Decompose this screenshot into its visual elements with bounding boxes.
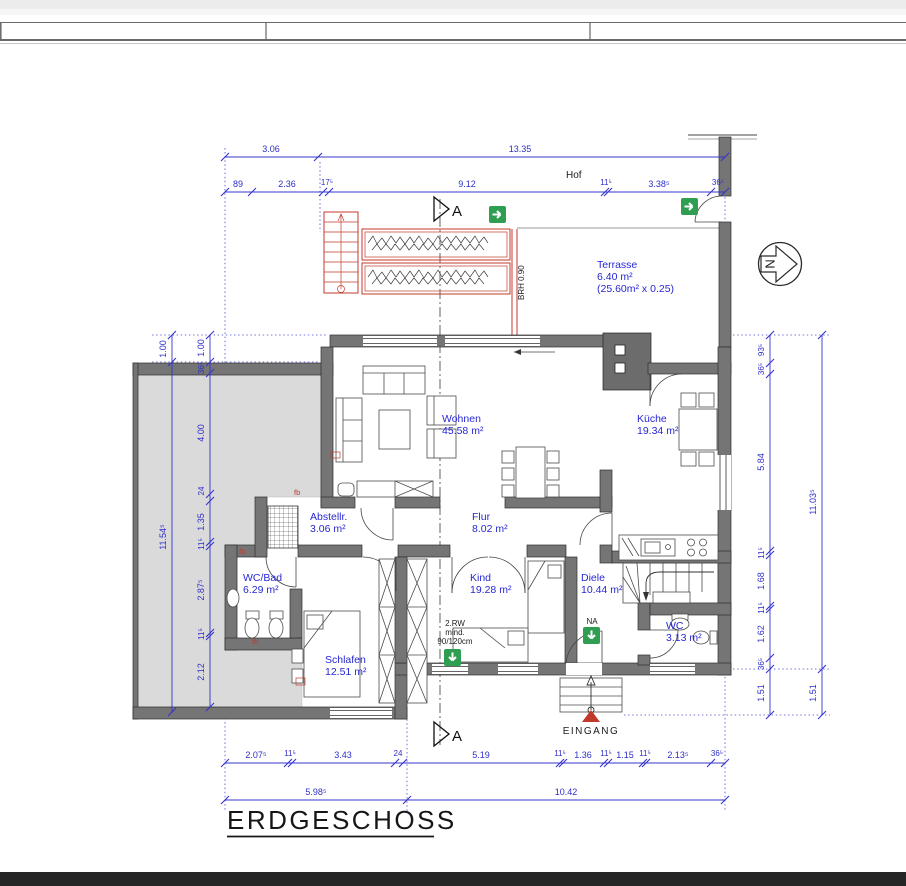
svg-text:ERDGESCHOSS: ERDGESCHOSS (227, 805, 457, 835)
svg-text:5.98⁵: 5.98⁵ (305, 787, 327, 797)
svg-text:13.35: 13.35 (509, 144, 532, 154)
room-area-wohnen: 45.58 m² (442, 425, 484, 437)
north-label: N (763, 259, 778, 268)
room-label-diele: Diele (581, 572, 605, 584)
svg-text:1.51: 1.51 (808, 684, 818, 702)
section-marker-bottom: A (452, 728, 462, 745)
scan-bottom-band (0, 872, 906, 886)
svg-text:36⁵: 36⁵ (197, 362, 206, 374)
svg-text:11⁵: 11⁵ (197, 628, 206, 640)
svg-text:4.00: 4.00 (196, 424, 206, 442)
room-label-wcbad: WC/Bad (243, 572, 282, 584)
svg-text:2.07⁵: 2.07⁵ (245, 750, 267, 760)
room-area-schlafen: 12.51 m² (325, 666, 367, 678)
svg-text:24: 24 (394, 749, 403, 758)
room-area-diele: 10.44 m² (581, 584, 623, 596)
svg-text:1.68: 1.68 (756, 572, 766, 590)
rescue-window-icon (444, 649, 461, 666)
svg-text:11⁵: 11⁵ (197, 538, 206, 550)
svg-text:mind.: mind. (445, 628, 465, 637)
svg-text:11⁵: 11⁵ (639, 749, 651, 758)
room-label-kueche: Küche (637, 413, 667, 425)
svg-text:36⁵: 36⁵ (757, 363, 766, 375)
svg-text:2.87⁵: 2.87⁵ (196, 579, 206, 601)
svg-text:11⁵: 11⁵ (600, 749, 612, 758)
svg-text:1.15: 1.15 (616, 750, 634, 760)
svg-text:2.36: 2.36 (278, 179, 296, 189)
svg-text:1.51: 1.51 (756, 684, 766, 702)
room-label-schlafen: Schlafen (325, 654, 366, 666)
svg-text:17⁵: 17⁵ (321, 178, 333, 187)
drawing-title: ERDGESCHOSS (227, 805, 457, 837)
exit-arrow-icon (681, 198, 698, 215)
svg-text:24: 24 (197, 486, 206, 495)
room-area-terrasse: 6.40 m² (597, 271, 633, 283)
room-area-wcbad: 6.29 m² (243, 584, 279, 596)
svg-text:11⁵: 11⁵ (757, 547, 766, 559)
svg-text:11⁵: 11⁵ (600, 178, 612, 187)
svg-text:5.84: 5.84 (756, 453, 766, 471)
svg-text:3.06: 3.06 (262, 144, 280, 154)
svg-text:fb: fb (252, 637, 258, 646)
svg-text:2.13⁵: 2.13⁵ (667, 750, 689, 760)
svg-text:89: 89 (233, 179, 243, 189)
room-label-wc: WC (666, 620, 684, 632)
svg-text:1.35: 1.35 (196, 513, 206, 531)
svg-text:1.36: 1.36 (574, 750, 592, 760)
svg-text:11⁵: 11⁵ (284, 749, 296, 758)
na-label: NA (586, 617, 598, 626)
svg-text:3.43: 3.43 (334, 750, 352, 760)
room-area-kind: 19.28 m² (470, 584, 512, 596)
room-label-abstellraum: Abstellr. (310, 511, 347, 523)
room-area-abstellraum: 3.06 m² (310, 523, 346, 535)
floor-plan-page: A A BRH 0.90 (0, 0, 906, 886)
eingang-label: EINGANG (563, 726, 620, 737)
svg-text:11⁵: 11⁵ (757, 602, 766, 614)
svg-text:fb: fb (294, 488, 300, 497)
svg-text:fb: fb (239, 547, 245, 556)
na-exit-icon (583, 627, 600, 644)
room-label-terrasse: Terrasse (597, 259, 637, 271)
room-area-wc: 3.13 m² (666, 632, 702, 644)
room-area-flur: 8.02 m² (472, 523, 508, 535)
svg-text:1.00: 1.00 (196, 339, 206, 357)
svg-text:36⁵: 36⁵ (711, 749, 723, 758)
room-area-kueche: 19.34 m² (637, 425, 679, 437)
north-arrow: N (759, 243, 802, 286)
svg-text:36⁵: 36⁵ (712, 178, 724, 187)
svg-text:93⁵: 93⁵ (757, 344, 766, 356)
svg-text:11.54⁵: 11.54⁵ (158, 524, 168, 550)
room-label-kind: Kind (470, 572, 491, 584)
section-marker-top: A (452, 203, 462, 220)
svg-text:2.12: 2.12 (196, 663, 206, 681)
room-note-terrasse: (25.60m² x 0.25) (597, 283, 674, 295)
svg-text:3.38⁵: 3.38⁵ (648, 179, 670, 189)
exit-arrow-icon (489, 206, 506, 223)
svg-text:1.00: 1.00 (158, 340, 168, 358)
svg-text:11⁵: 11⁵ (554, 749, 566, 758)
svg-text:36⁵: 36⁵ (757, 658, 766, 670)
svg-text:5.19: 5.19 (472, 750, 490, 760)
svg-text:1.62: 1.62 (756, 625, 766, 643)
room-label-wohnen: Wohnen (442, 413, 481, 425)
svg-text:9.12: 9.12 (458, 179, 476, 189)
svg-text:10.42: 10.42 (555, 787, 578, 797)
svg-text:2.RW: 2.RW (445, 619, 465, 628)
room-label-flur: Flur (472, 511, 491, 523)
hof-label: Hof (566, 170, 582, 181)
svg-text:11.03⁵: 11.03⁵ (808, 489, 818, 515)
svg-text:90/120cm: 90/120cm (437, 637, 472, 646)
brh-label: BRH 0.90 (517, 265, 526, 300)
